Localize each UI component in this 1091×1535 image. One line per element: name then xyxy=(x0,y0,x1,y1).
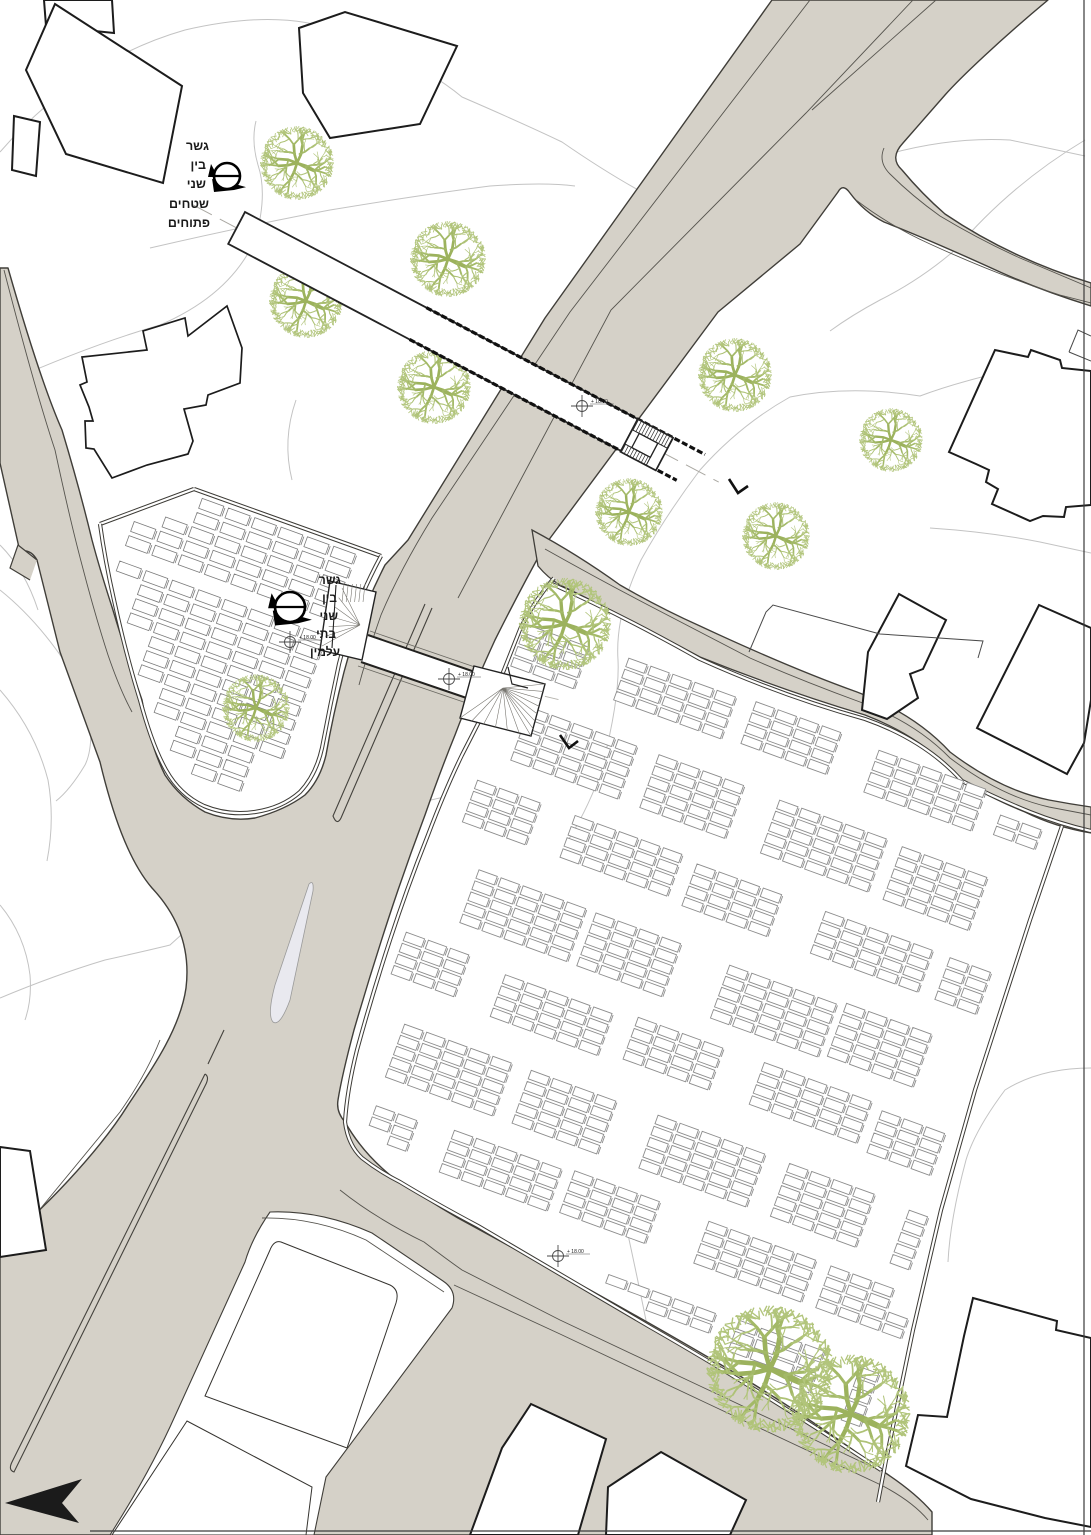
svg-text:שטחים: שטחים xyxy=(169,197,209,211)
svg-text:בין: בין xyxy=(322,591,337,605)
svg-text:שני: שני xyxy=(187,177,206,191)
svg-text:עלמין: עלמין xyxy=(310,645,340,659)
svg-text:גשר: גשר xyxy=(319,573,341,587)
svg-text:פתוחים: פתוחים xyxy=(168,216,210,230)
svg-text:בין: בין xyxy=(190,158,206,172)
svg-text:גשר: גשר xyxy=(186,139,209,153)
svg-text:בתי: בתי xyxy=(316,627,336,641)
svg-text:שני: שני xyxy=(320,609,339,623)
